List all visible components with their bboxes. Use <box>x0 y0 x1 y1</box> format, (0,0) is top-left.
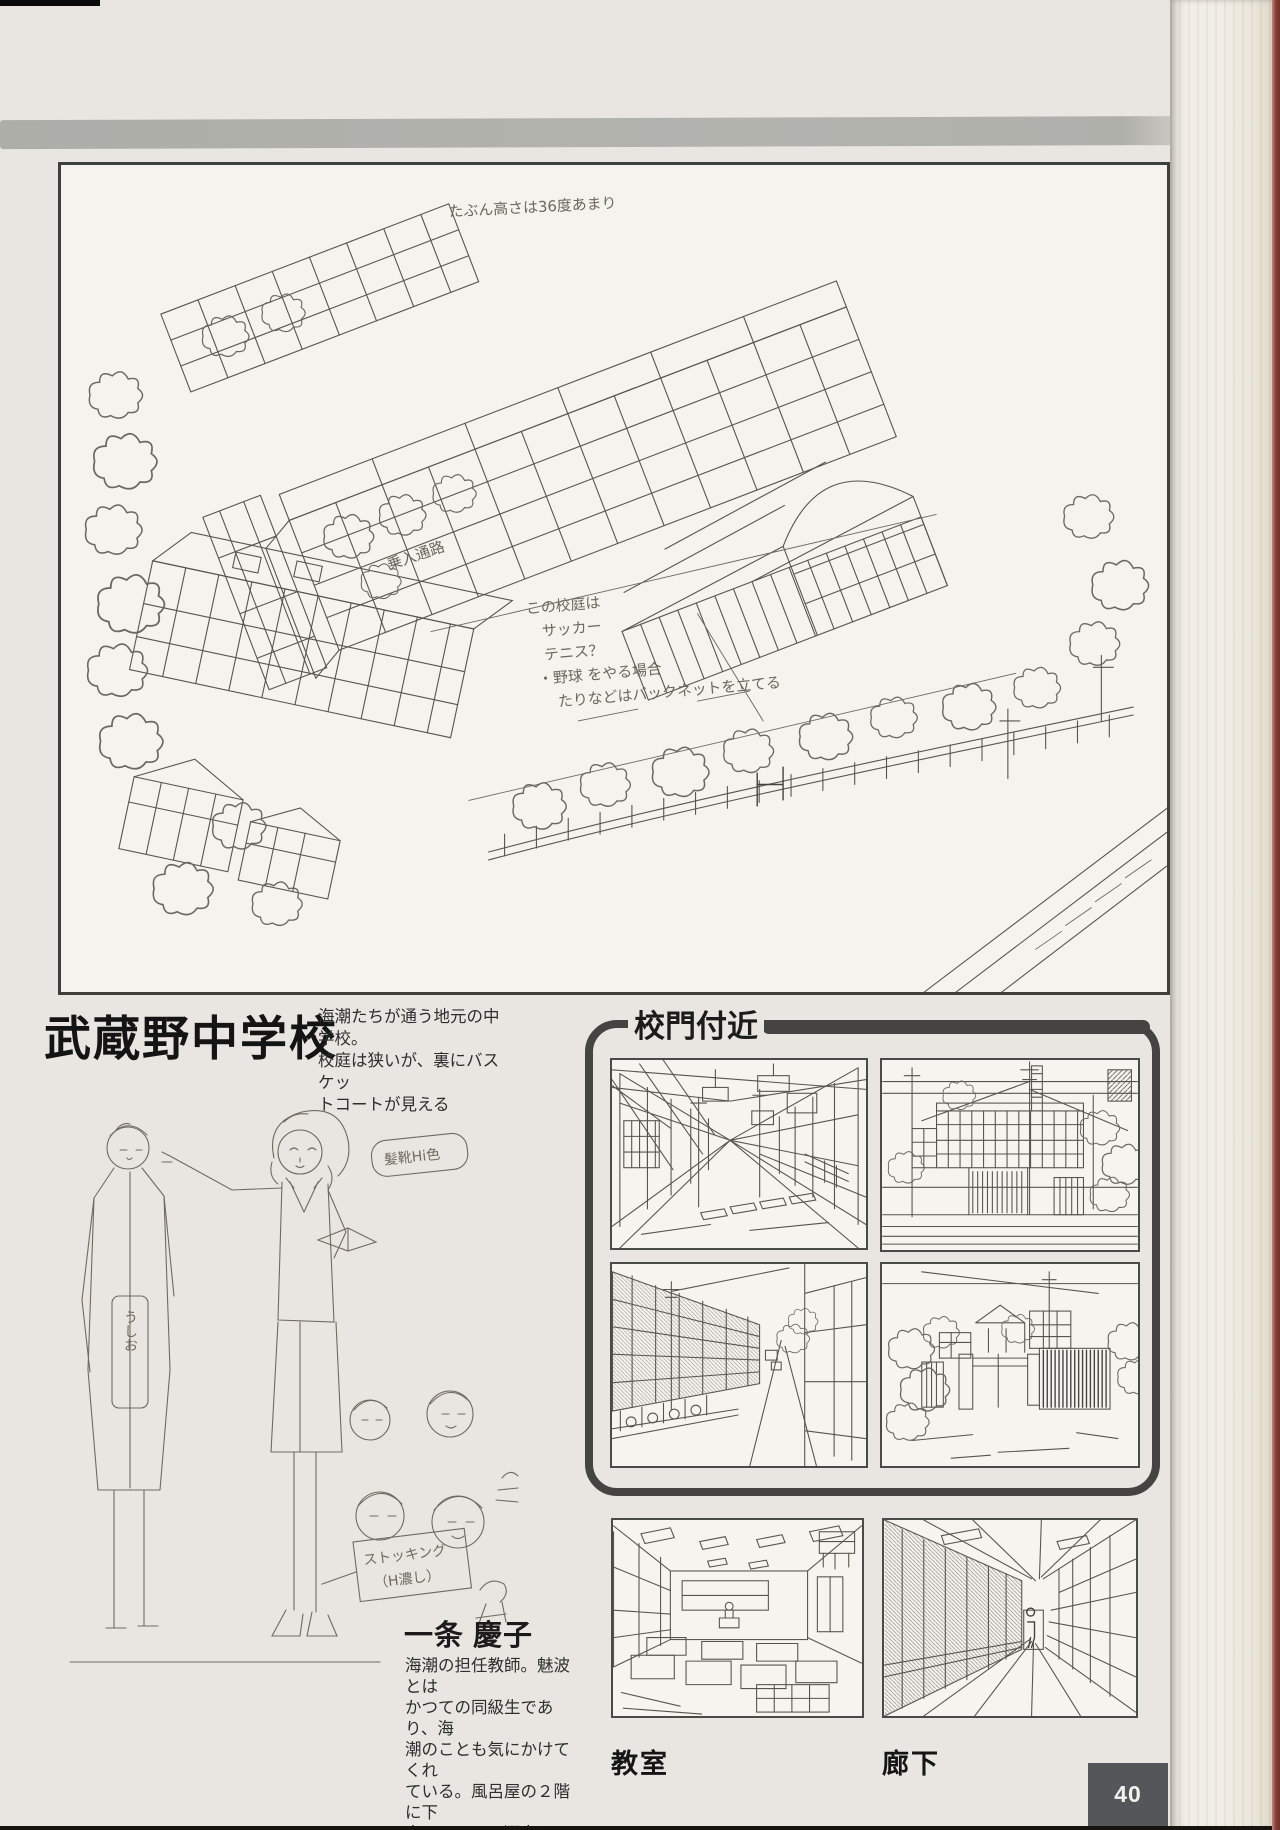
handwritten-note-top: たぶん高さは36度あまり <box>448 194 617 221</box>
svg-text:たぶん高さは36度あまり: たぶん高さは36度あまり <box>448 194 617 221</box>
name-tag: うしお <box>122 1310 138 1352</box>
svg-text:・野球 をやる場合: ・野球 をやる場合 <box>537 660 662 689</box>
page-title: 武蔵野中学校 <box>44 1000 338 1069</box>
svg-text:乗入通路: 乗入通路 <box>385 537 447 573</box>
hair-note: 髪靴Hi色 <box>370 1132 469 1178</box>
corridor-panel <box>882 1518 1138 1718</box>
page-number: 40 <box>1114 1781 1142 1808</box>
page-number-box: 40 <box>1088 1763 1168 1826</box>
aerial-school-drawing: たぶん高さは36度あまり 乗入通路 この校庭は サッカー テニス？ ・野球 をや… <box>61 165 1167 992</box>
gate-section-title-bar <box>762 1020 1150 1034</box>
svg-text:サッカー: サッカー <box>541 617 602 640</box>
gate-panel-school-front <box>880 1058 1140 1252</box>
stocking-note: ストッキング （H濃し） <box>317 1528 471 1606</box>
character-bio-line: ている。風呂屋の２階に下 <box>405 1782 585 1824</box>
book-spine-edge <box>1272 0 1280 1830</box>
book-page: たぶん高さは36度あまり 乗入通路 この校庭は サッカー テニス？ ・野球 をや… <box>0 0 1280 1830</box>
gate-section-title: 校門付近 <box>628 1001 764 1046</box>
character-bio-line: 潮のことも気にかけてくれ <box>405 1740 585 1782</box>
aerial-drawing-frame: たぶん高さは36度あまり 乗入通路 この校庭は サッカー テニス？ ・野球 をや… <box>58 162 1170 995</box>
corridor-label: 廊下 <box>882 1742 940 1781</box>
school-description-line: 海潮たちが通う地元の中学校。 <box>318 1006 508 1050</box>
scan-corner-artifact <box>0 0 100 6</box>
top-gray-band <box>0 116 1248 149</box>
svg-text:（H濃し）: （H濃し） <box>373 1568 441 1592</box>
page-edge <box>1170 0 1272 1830</box>
svg-text:テニス？: テニス？ <box>543 641 604 664</box>
character-bio-line: かつての同級生であり、海 <box>405 1698 585 1740</box>
character-name: 一条 慶子 <box>404 1612 533 1654</box>
svg-text:ストッキング: ストッキング <box>362 1543 447 1569</box>
character-bio: 海潮の担任教師。魅波とは かつての同級生であり、海 潮のことも気にかけてくれ て… <box>405 1656 585 1830</box>
gate-panel-street-apartments <box>610 1262 868 1468</box>
handwritten-note-court: この校庭は サッカー テニス？ ・野球 をやる場合 たりなどはバックネットを立て… <box>525 578 781 712</box>
classroom-panel <box>611 1518 864 1718</box>
gate-panel-street-shops <box>610 1058 868 1250</box>
svg-text:髪靴Hi色: 髪靴Hi色 <box>383 1146 441 1169</box>
handwritten-note-path: 乗入通路 <box>385 537 447 573</box>
scan-bottom-edge <box>0 1826 1272 1830</box>
classroom-label: 教室 <box>611 1742 669 1781</box>
gate-panel-gate-closeup <box>880 1262 1140 1468</box>
character-bio-line: 海潮の担任教師。魅波とは <box>405 1656 585 1698</box>
svg-text:この校庭は: この校庭は <box>525 593 601 617</box>
